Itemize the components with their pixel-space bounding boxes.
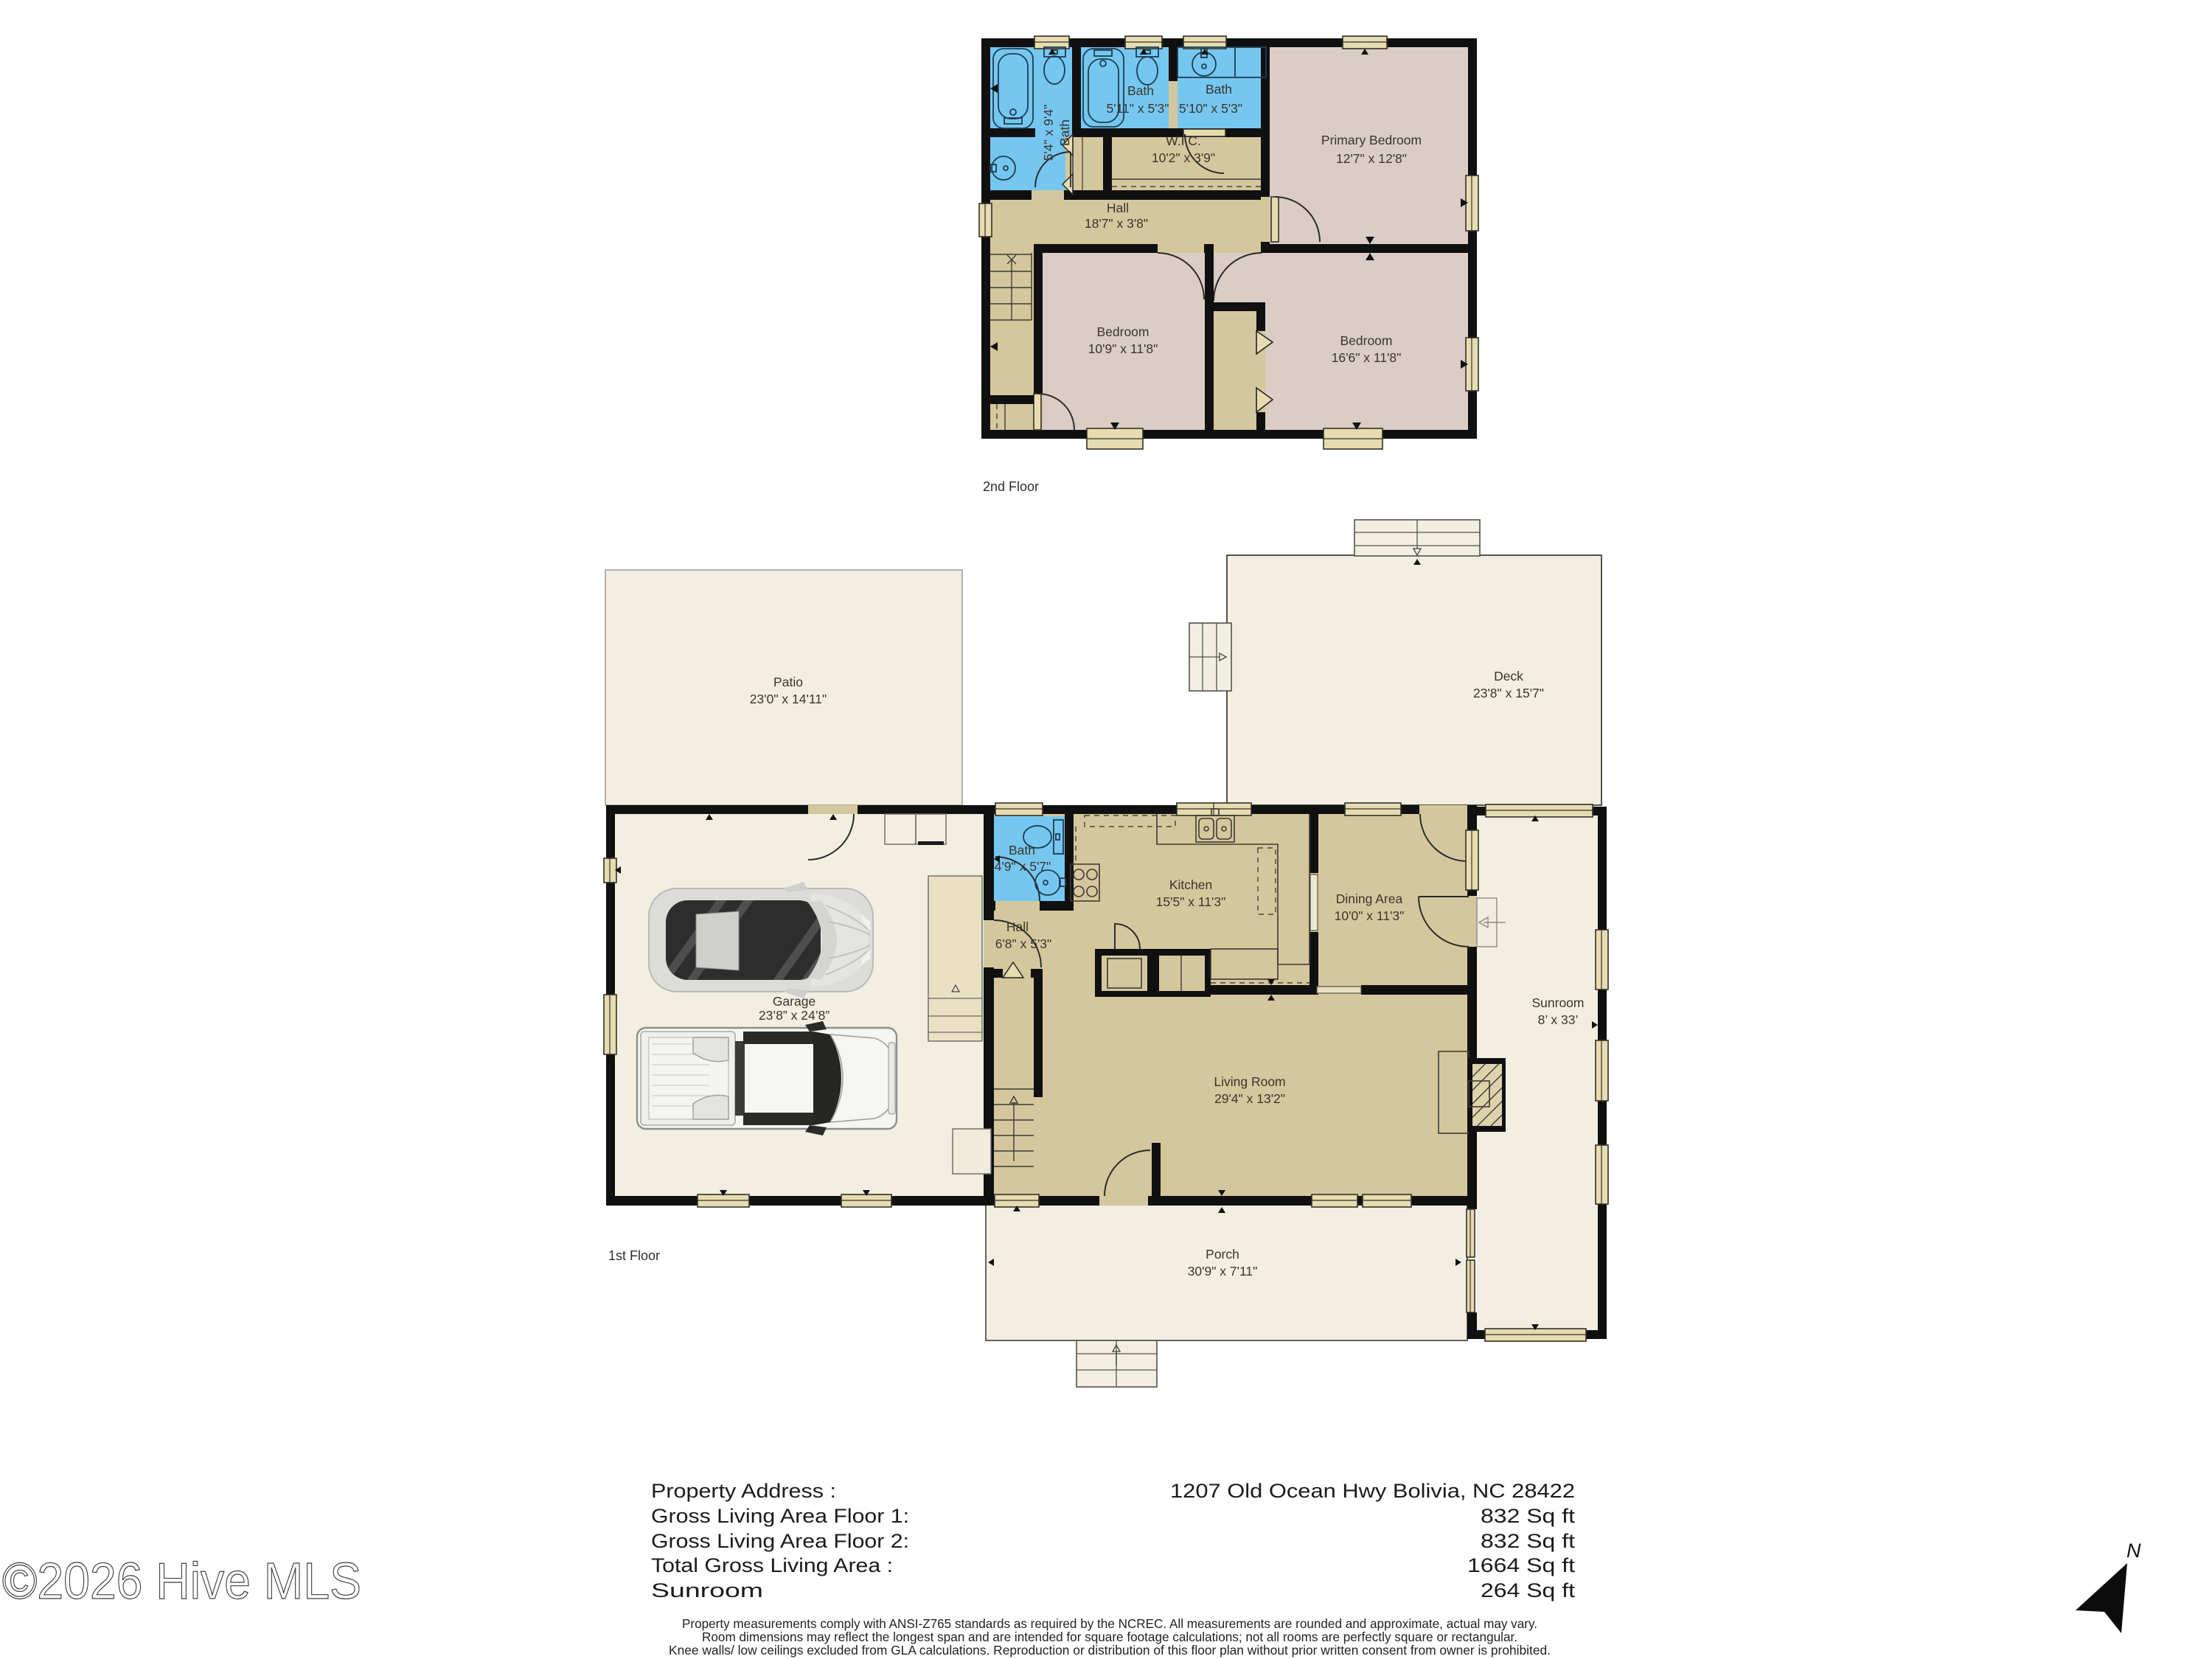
svg-text:Patio: Patio [773, 675, 803, 689]
svg-text:16'6" x 11'8": 16'6" x 11'8" [1332, 350, 1402, 365]
svg-text:10'2" x 3'9": 10'2" x 3'9" [1152, 150, 1215, 165]
svg-text:832 Sq ft: 832 Sq ft [1481, 1505, 1576, 1527]
svg-text:Living Room: Living Room [1214, 1074, 1285, 1089]
svg-text:1664 Sq ft: 1664 Sq ft [1467, 1554, 1576, 1576]
svg-text:Hall: Hall [1107, 201, 1129, 215]
svg-text:15'5" x 11'3": 15'5" x 11'3" [1156, 894, 1226, 909]
svg-text:N: N [2126, 1540, 2141, 1562]
svg-text:Bedroom: Bedroom [1096, 324, 1149, 339]
svg-text:Sunroom: Sunroom [651, 1579, 763, 1601]
svg-text:832 Sq ft: 832 Sq ft [1481, 1530, 1576, 1552]
svg-text:18'7" x 3'8": 18'7" x 3'8" [1085, 216, 1148, 231]
svg-text:Bedroom: Bedroom [1340, 333, 1392, 348]
svg-text:Sunroom: Sunroom [1531, 995, 1584, 1010]
svg-text:5'11" x 5'3": 5'11" x 5'3" [1107, 101, 1169, 116]
svg-text:Bath: Bath [1009, 843, 1035, 858]
svg-text:Gross Living Area Floor 2:: Gross Living Area Floor 2: [651, 1530, 909, 1552]
svg-text:1207 Old Ocean Hwy Bolivia, NC: 1207 Old Ocean Hwy Bolivia, NC 28422 [1170, 1480, 1575, 1502]
svg-text:Property measurements comply w: Property measurements comply with ANSI-Z… [682, 1616, 1537, 1631]
svg-text:Knee walls/ low ceilings exclu: Knee walls/ low ceilings excluded from G… [669, 1643, 1551, 1658]
svg-text:4'9" x 5'7": 4'9" x 5'7" [995, 859, 1051, 874]
svg-text:©2026 Hive MLS: ©2026 Hive MLS [2, 1552, 361, 1610]
svg-text:5'4" x 9'4": 5'4" x 9'4" [1041, 105, 1056, 161]
svg-text:W.I.C.: W.I.C. [1166, 133, 1201, 148]
svg-text:12'7" x 12'8": 12'7" x 12'8" [1336, 151, 1407, 166]
svg-text:Gross Living Area Floor 1:: Gross Living Area Floor 1: [651, 1505, 909, 1527]
svg-text:1st Floor: 1st Floor [608, 1248, 660, 1263]
svg-text:Porch: Porch [1206, 1247, 1239, 1262]
svg-text:8’ x 33’: 8’ x 33’ [1538, 1012, 1579, 1027]
svg-text:30'9" x 7'11": 30'9" x 7'11" [1188, 1264, 1258, 1279]
svg-text:Bath: Bath [1127, 83, 1154, 98]
svg-text:10'9" x 11'8": 10'9" x 11'8" [1088, 341, 1158, 356]
svg-text:Dining Area: Dining Area [1336, 891, 1403, 906]
svg-text:Total Gross Living Area :: Total Gross Living Area : [651, 1554, 893, 1576]
svg-text:Hall: Hall [1006, 919, 1029, 934]
svg-text:Deck: Deck [1494, 669, 1523, 684]
svg-text:23'8" x 15'7": 23'8" x 15'7" [1473, 686, 1544, 700]
svg-text:Bath: Bath [1206, 82, 1232, 97]
svg-text:Room dimensions may reflect th: Room dimensions may reflect the longest … [702, 1630, 1517, 1644]
svg-text:29'4" x 13'2": 29'4" x 13'2" [1214, 1091, 1285, 1106]
svg-text:Bath: Bath [1057, 119, 1072, 146]
svg-text:Kitchen: Kitchen [1169, 877, 1212, 892]
svg-text:Garage: Garage [773, 994, 815, 1009]
svg-text:23’8” x 24’8”: 23’8” x 24’8” [759, 1008, 829, 1023]
svg-text:5'10" x 5'3": 5'10" x 5'3" [1179, 101, 1242, 116]
svg-text:Property Address :: Property Address : [651, 1480, 836, 1502]
svg-text:10'0" x 11'3": 10'0" x 11'3" [1335, 908, 1405, 923]
svg-text:2nd Floor: 2nd Floor [983, 479, 1039, 494]
svg-text:264 Sq ft: 264 Sq ft [1481, 1579, 1576, 1601]
svg-text:Primary Bedroom: Primary Bedroom [1321, 133, 1422, 147]
svg-text:6'8" x 5'3": 6'8" x 5'3" [995, 936, 1052, 951]
svg-text:23'0" x 14'11": 23'0" x 14'11" [750, 692, 827, 706]
